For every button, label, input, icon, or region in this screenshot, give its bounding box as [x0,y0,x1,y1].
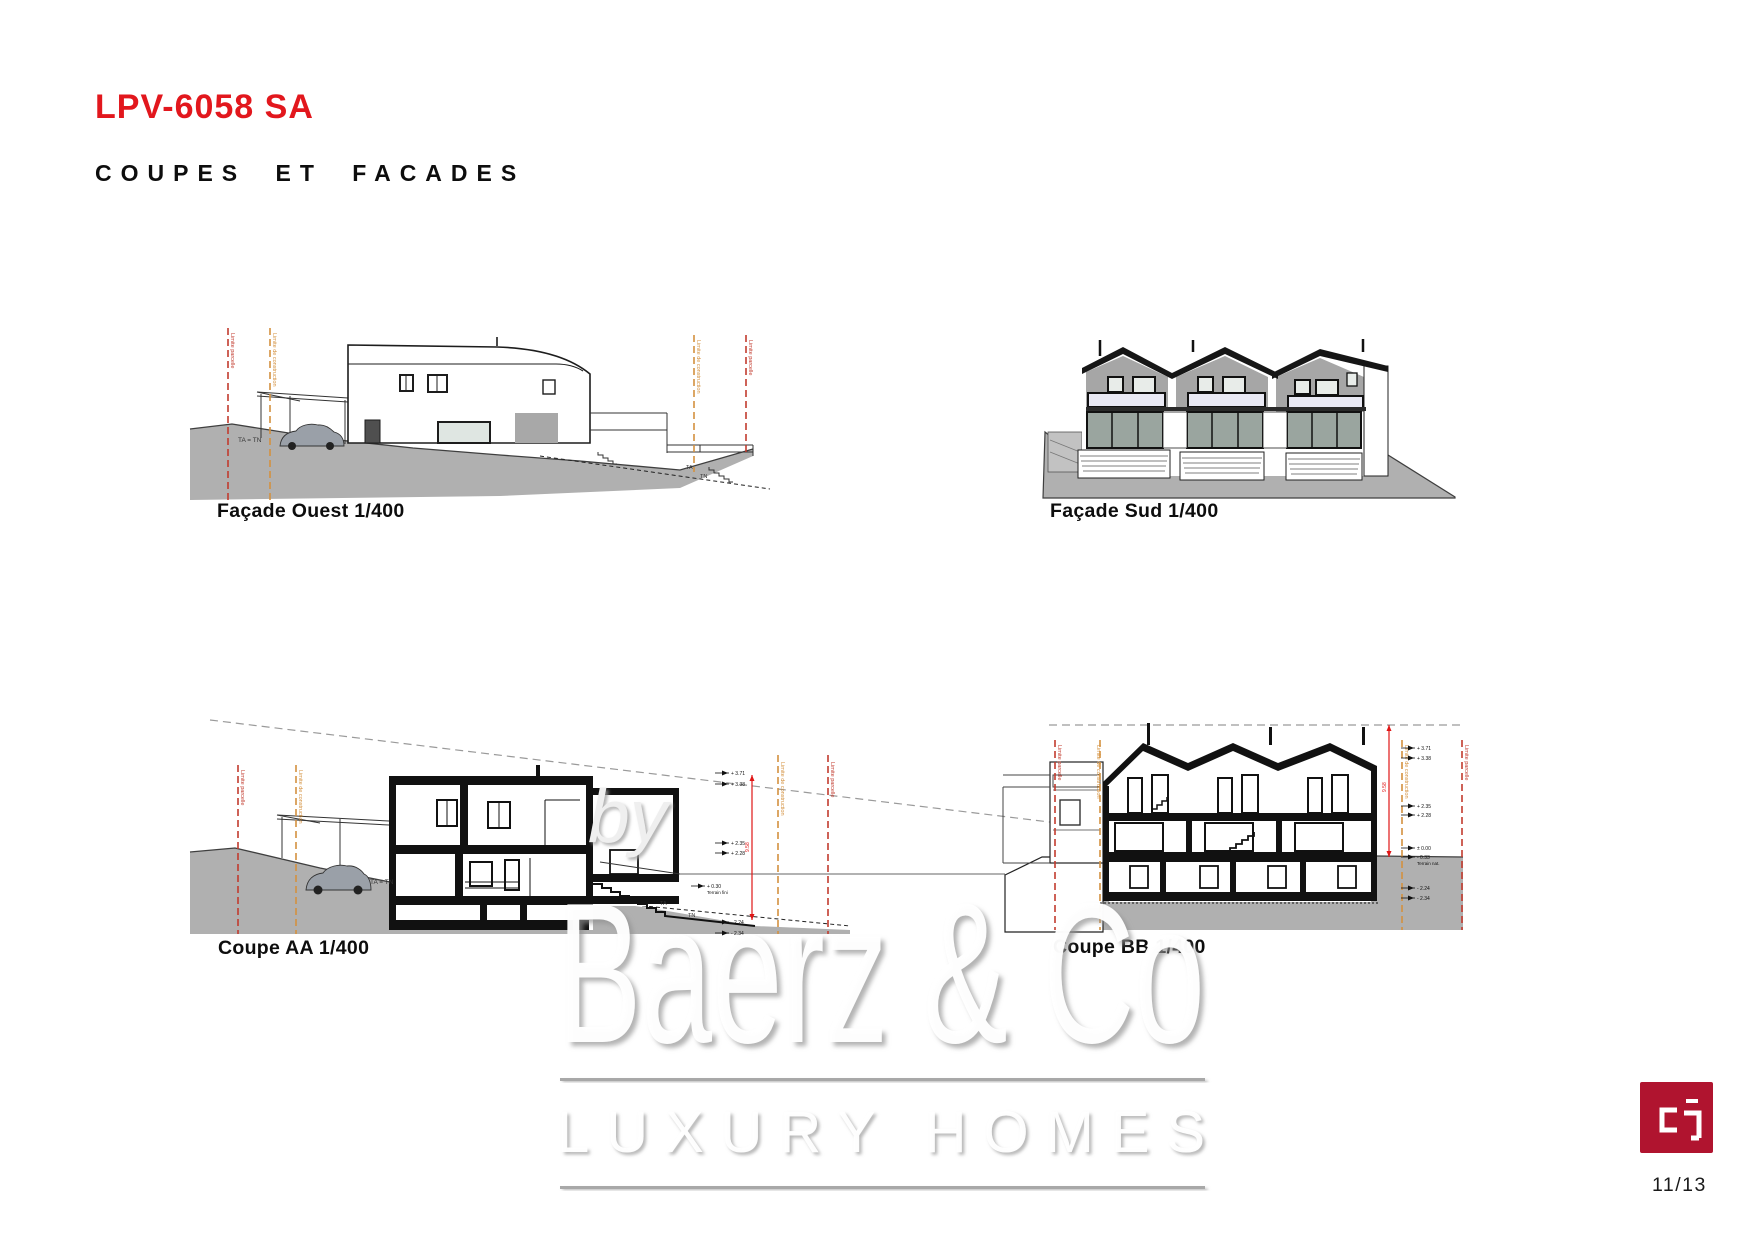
svg-text:Limite de construction: Limite de construction [1403,745,1409,799]
svg-text:- 2.24: - 2.24 [731,920,744,926]
svg-text:± 0.00: ± 0.00 [1417,846,1431,852]
caption-facade-ouest: Façade Ouest 1/400 [217,500,405,523]
svg-text:Limite parcelle: Limite parcelle [239,770,245,805]
drawing-coupe-bb: Limite parcelle Limite de construction L… [1003,723,1469,932]
carport-aa [277,815,389,868]
recess-shadow [515,413,558,443]
svg-text:+ 2.35: + 2.35 [1417,804,1431,810]
svg-text:Limite de construction: Limite de construction [1095,745,1101,799]
svg-text:TN: TN [688,913,695,919]
svg-text:+ 2.28: + 2.28 [731,851,745,857]
annex-bb [1003,762,1103,863]
svg-text:- 2.34: - 2.34 [731,931,744,937]
drawing-facade-sud [1043,339,1455,498]
svg-text:TA = TN: TA = TN [370,879,394,886]
svg-text:Limite de construction: Limite de construction [695,340,701,394]
cp-logo [1640,1082,1713,1153]
plan-sheet: LPV-6058 SA COUPES ET FACADES [0,0,1754,1241]
drawing-coupe-aa: Limite parcelle Limite de construction L… [190,755,850,937]
caption-coupe-aa: Coupe AA 1/400 [218,937,369,960]
svg-text:Limite de construction: Limite de construction [271,333,277,387]
svg-text:9.58: 9.58 [1382,782,1388,792]
svg-text:Terrain fini: Terrain fini [707,890,728,895]
elevation-markers-aa: + 3.71 + 3.38 + 2.35 + 2.28 + 0.30Terrai… [691,771,745,938]
svg-text:Limite parcelle: Limite parcelle [229,333,235,368]
caption-coupe-bb: Coupe BB 1/400 [1053,936,1206,959]
svg-text:TA: TA [660,901,667,907]
page-number: 11/13 [1652,1174,1707,1197]
svg-text:+ 3.38: + 3.38 [731,782,745,788]
svg-text:+ 3.71: + 3.71 [731,771,745,777]
cp-monogram-icon [1640,1082,1713,1153]
section-aa [389,765,755,930]
svg-text:TN: TN [700,474,707,480]
svg-text:- 2.24: - 2.24 [1417,886,1430,892]
caption-facade-sud: Façade Sud 1/400 [1050,500,1218,523]
svg-text:Limite parcelle: Limite parcelle [1056,745,1062,780]
svg-text:Limite de construction: Limite de construction [779,762,785,816]
garage-outline [1005,857,1103,932]
ground-glazing [1087,412,1361,448]
drawing-facade-ouest: Limite parcelle Limite de construction L… [190,328,770,500]
svg-text:+ 2.35: + 2.35 [731,841,745,847]
section-bb [1100,723,1380,903]
svg-text:Limite parcelle: Limite parcelle [747,340,753,375]
balconies [1088,393,1363,409]
svg-text:TA = TN: TA = TN [238,437,262,444]
svg-text:Limite parcelle: Limite parcelle [1463,745,1469,780]
svg-text:Limite parcelle: Limite parcelle [829,762,835,797]
svg-text:TA: TA [686,465,693,471]
svg-text:Limite de construction: Limite de construction [297,770,303,824]
svg-text:9.58: 9.58 [745,842,751,852]
svg-text:+ 3.71: + 3.71 [1417,746,1431,752]
svg-text:- 2.34: - 2.34 [1417,896,1430,902]
drawings-canvas: Limite parcelle Limite de construction L… [0,0,1754,1241]
svg-text:Terrain nat.: Terrain nat. [1417,861,1440,866]
entry-stairs [1078,450,1362,480]
svg-text:+ 2.28: + 2.28 [1417,813,1431,819]
svg-text:+ 3.38: + 3.38 [1417,756,1431,762]
